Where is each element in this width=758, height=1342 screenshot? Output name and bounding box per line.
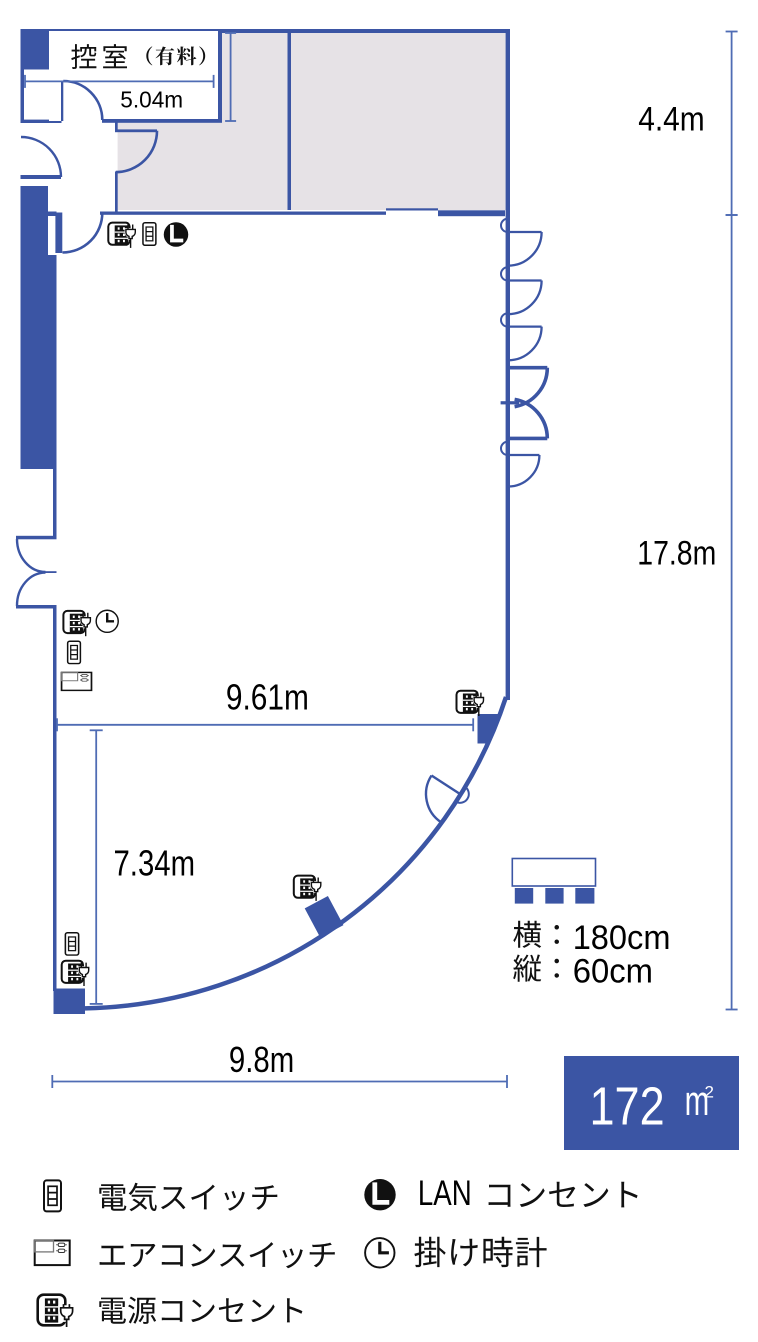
- svg-text:5.04m: 5.04m: [120, 86, 183, 112]
- svg-text:17.8m: 17.8m: [637, 535, 716, 573]
- svg-text:172: 172: [590, 1077, 665, 1136]
- svg-text:7.34m: 7.34m: [114, 842, 196, 883]
- svg-text:9.61m: 9.61m: [226, 677, 309, 718]
- svg-text:9.8m: 9.8m: [229, 1039, 294, 1080]
- svg-text:180cm: 180cm: [573, 919, 671, 957]
- svg-text:2: 2: [705, 1083, 714, 1102]
- svg-text:LAN: LAN: [418, 1174, 472, 1213]
- svg-text:60cm: 60cm: [573, 953, 653, 991]
- svg-text:4.4m: 4.4m: [638, 101, 705, 139]
